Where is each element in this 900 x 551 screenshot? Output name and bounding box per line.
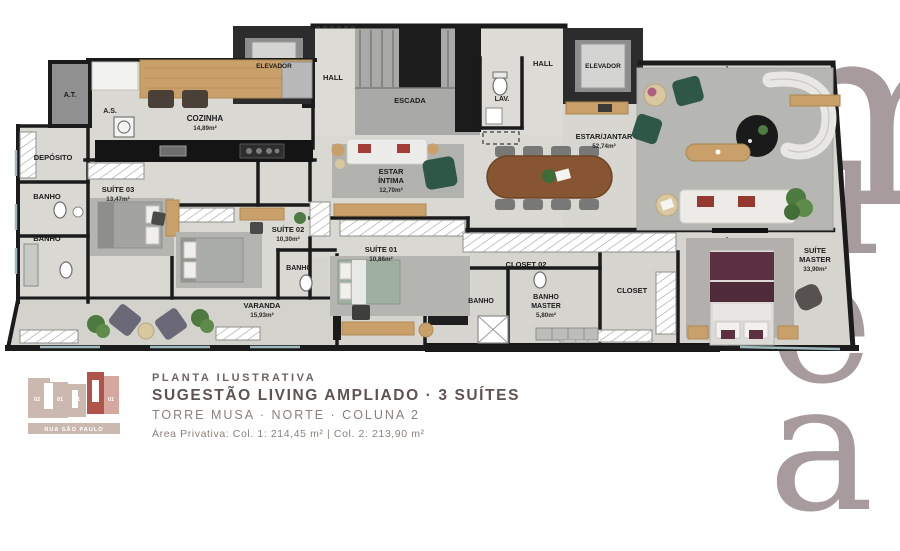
- room-label-suite-02: SUÍTE 02: [272, 225, 305, 234]
- room-area-suite-03: 13,47m²: [106, 196, 129, 203]
- room-label-lav: LAV.: [495, 96, 510, 103]
- key-plan-unit: 01: [108, 397, 114, 403]
- key-plan: 02 01 01 02 01 RUA SÃO PAULO: [28, 372, 120, 434]
- room-label-closet-02: CLOSET 02: [506, 260, 547, 269]
- room-label-elevador-2: ELEVADOR: [585, 63, 621, 70]
- room-label-suite-master-2: MASTER: [799, 255, 831, 264]
- caption-title: SUGESTÃO LIVING AMPLIADO · 3 SUÍTES: [152, 387, 520, 405]
- room-label-varanda: VARANDA: [244, 301, 282, 310]
- room-label-as: A.S.: [103, 108, 117, 115]
- room-label-hall-2: HALL: [533, 59, 553, 68]
- room-area-suite-master: 33,90m²: [803, 266, 826, 273]
- caption: PLANTA ILUSTRATIVA SUGESTÃO LIVING AMPLI…: [152, 372, 520, 440]
- room-label-suite-03: SUÍTE 03: [102, 185, 135, 194]
- key-plan-unit: 02: [92, 397, 98, 403]
- key-plan-street: RUA SÃO PAULO: [44, 426, 103, 433]
- suite-03-furniture: [90, 198, 179, 256]
- room-label-estar-intima-2: ÍNTIMA: [378, 176, 404, 185]
- room-label-at: A.T.: [64, 92, 77, 99]
- room-label-banho-master-2: MASTER: [531, 303, 561, 310]
- room-area-suite-02: 10,30m²: [276, 236, 299, 243]
- room-label-closet: CLOSET: [617, 286, 648, 295]
- key-plan-unit: 01: [74, 397, 80, 403]
- room-area-varanda: 15,93m²: [250, 312, 273, 319]
- room-label-escada: ESCADA: [394, 96, 426, 105]
- room-label-hall-1: HALL: [323, 73, 343, 82]
- room-area-cozinha: 14,89m²: [193, 125, 216, 132]
- room-label-estar-intima-1: ESTAR: [379, 167, 404, 176]
- room-label-suite-01: SUÍTE 01: [365, 245, 398, 254]
- room-label-suite-master-1: SUÍTE: [804, 246, 826, 255]
- caption-subtitle: TORRE MUSA · NORTE · COLUNA 2: [152, 408, 520, 422]
- caption-kicker: PLANTA ILUSTRATIVA: [152, 372, 520, 384]
- room-label-banho-1: BANHO: [33, 192, 61, 201]
- room-label-elevador-1: ELEVADOR: [256, 63, 292, 70]
- room-label-banho-suite-02: BANHO: [286, 265, 312, 272]
- room-area-estar-intima: 12,70m²: [379, 187, 402, 194]
- room-area-suite-01: 10,86m²: [369, 256, 392, 263]
- room-label-cozinha: COZINHA: [187, 114, 224, 123]
- room-label-banho-2: BANHO: [33, 234, 61, 243]
- room-label-banho-suite-01: BANHO: [468, 298, 494, 305]
- room-label-deposito: DEPÓSITO: [34, 153, 73, 162]
- caption-areas: Área Privativa: Col. 1: 214,45 m² | Col.…: [152, 428, 520, 440]
- room-label-estar-jantar: ESTAR/JANTAR: [576, 132, 633, 141]
- room-area-banho-master: 5,80m²: [536, 312, 556, 319]
- key-plan-unit: 01: [57, 397, 63, 403]
- key-plan-unit: 02: [34, 397, 40, 403]
- room-label-banho-master-1: BANHO: [533, 294, 559, 301]
- room-area-estar-jantar: 52,74m²: [592, 143, 615, 150]
